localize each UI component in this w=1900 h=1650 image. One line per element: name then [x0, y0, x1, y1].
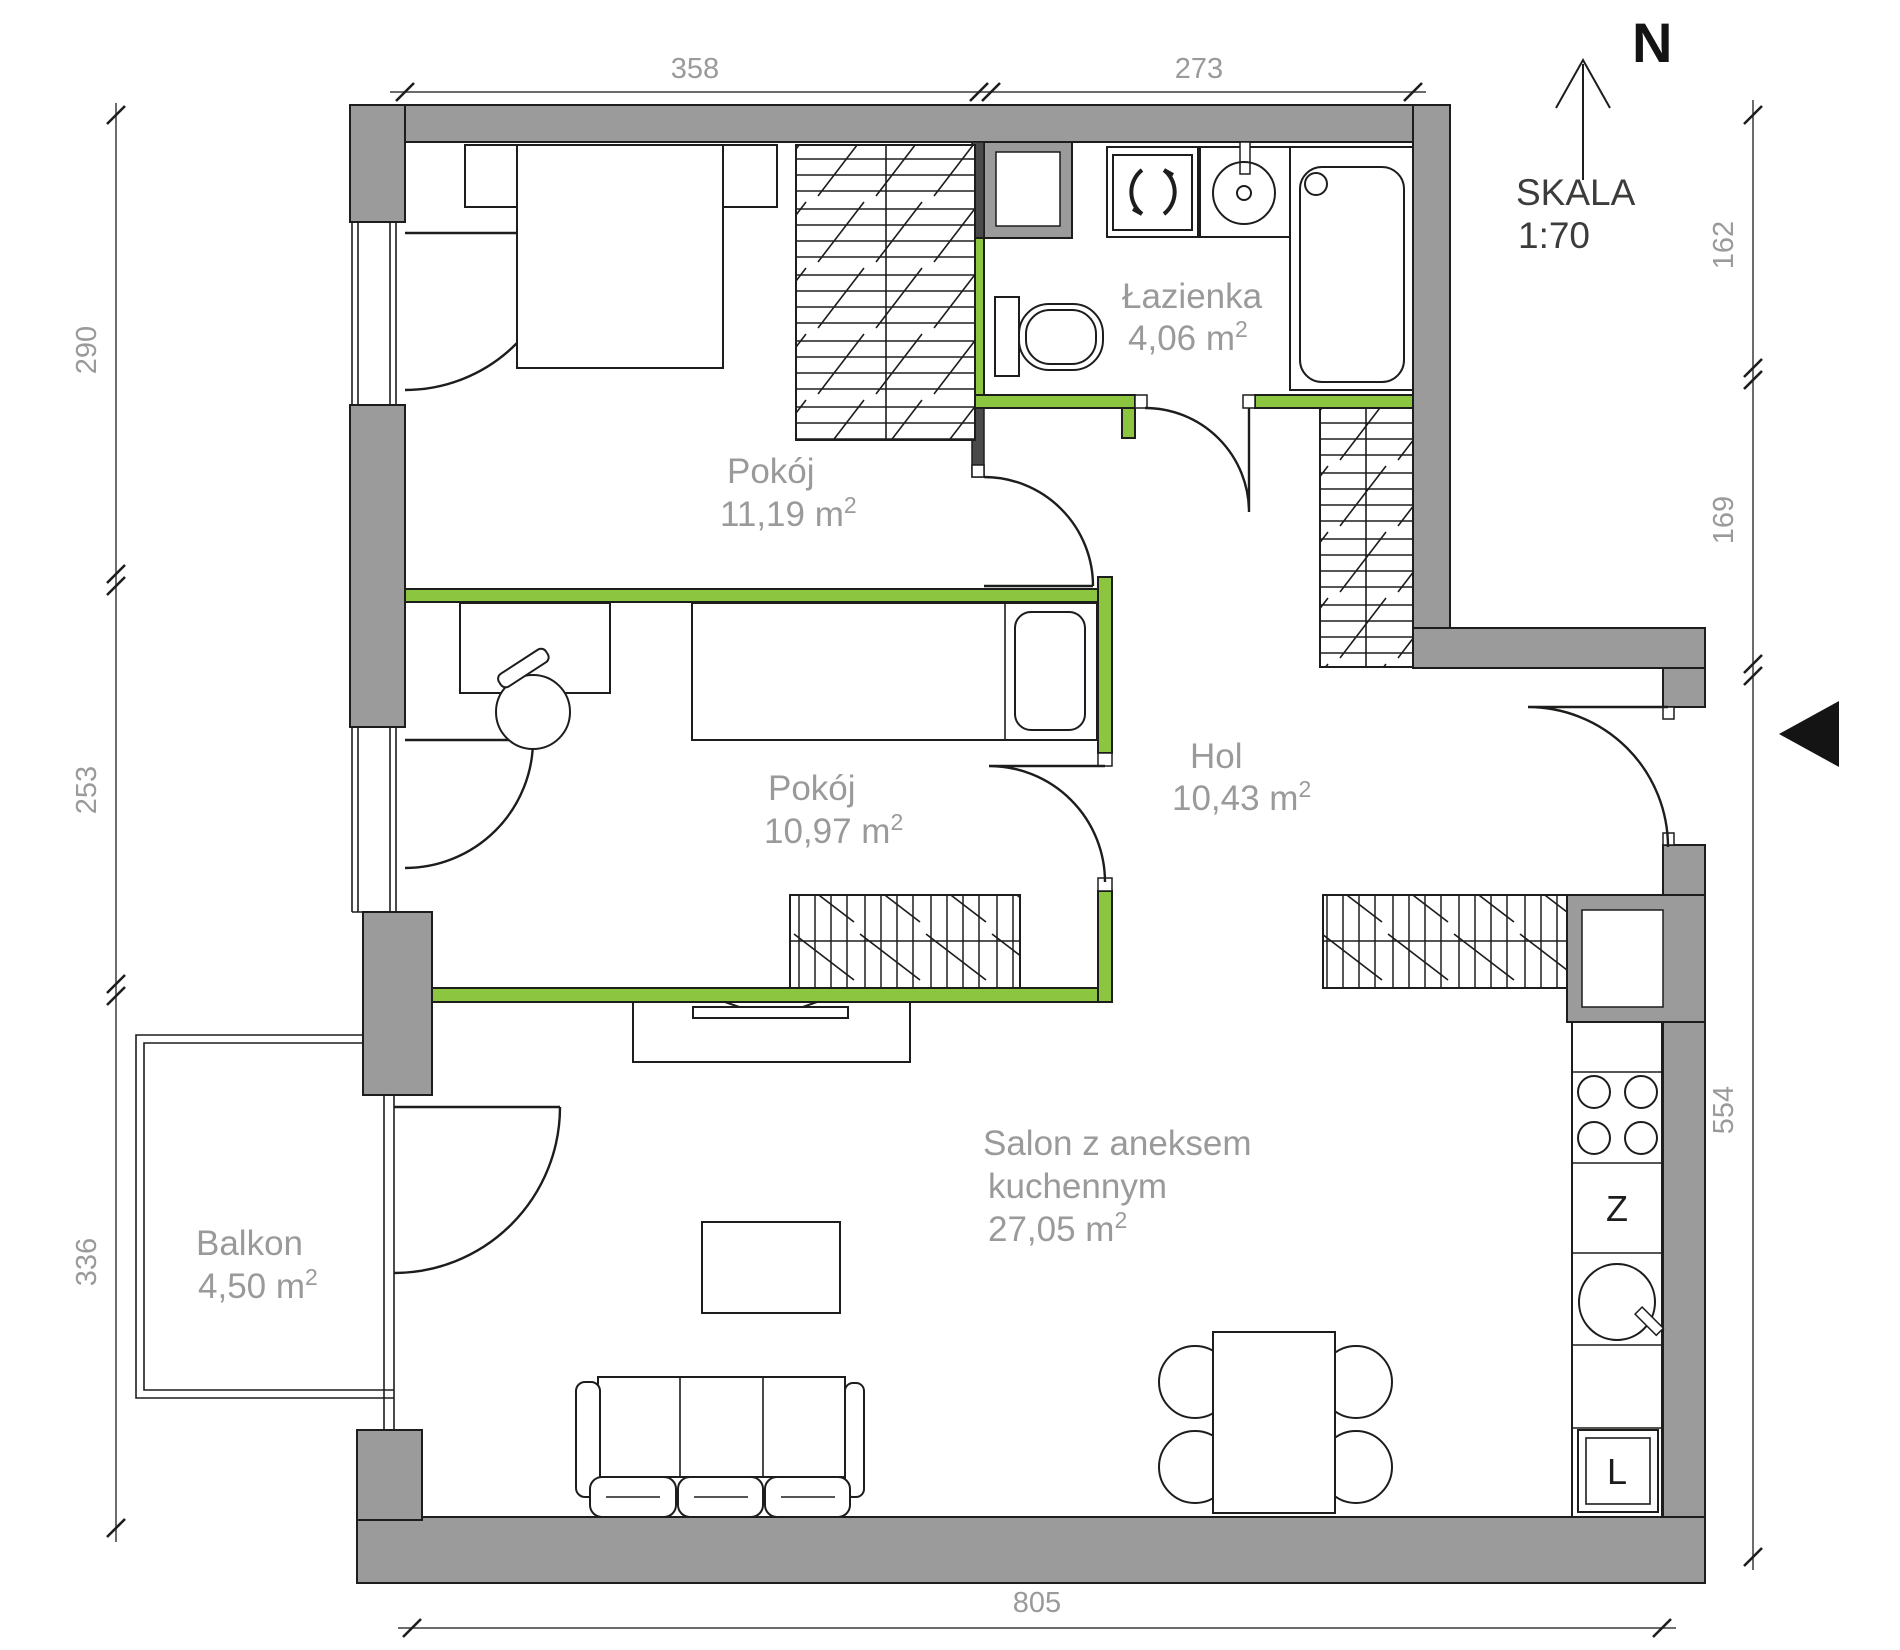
double-bed [517, 145, 723, 368]
dim-top-358: 358 [671, 53, 719, 85]
dim-right-554: 554 [1708, 1086, 1740, 1134]
pillow [1015, 612, 1085, 730]
entrance-door [1528, 707, 1668, 847]
room-label-balkon: Balkon [196, 1224, 303, 1263]
dim-left-290: 290 [71, 326, 103, 374]
dim-right-162: 162 [1708, 221, 1740, 269]
window-sash-room2 [405, 740, 533, 868]
kitchen-counter: Z L [1572, 1022, 1663, 1517]
balcony-outline [136, 1035, 394, 1398]
floor-plan-page: Z L Pokój 11,19 m2 Łazienka 4,06 m2 Pokó… [0, 0, 1900, 1650]
room-area-hol: 10,43 m2 [1172, 776, 1311, 818]
room-label-salon-2: kuchennym [988, 1167, 1167, 1206]
tv [693, 1007, 848, 1018]
sofa [576, 1377, 864, 1517]
doors [394, 233, 1668, 1273]
north-letter: N [1632, 11, 1672, 74]
compass: N [1556, 11, 1672, 180]
room-label-lazienka: Łazienka [1122, 277, 1263, 316]
furniture-bedroom [465, 145, 975, 440]
room2-door [989, 766, 1105, 882]
dining-set [1159, 1332, 1392, 1513]
coffee-table [702, 1222, 840, 1313]
entrance-marker-icon [1779, 701, 1839, 767]
scale-note: SKALA 1:70 [1516, 172, 1636, 256]
room-label-salon-1: Salon z aneksem [983, 1124, 1251, 1163]
bathroom-door [1145, 408, 1249, 512]
bedroom-door [984, 477, 1093, 586]
scale-label: SKALA [1516, 172, 1636, 213]
furniture-livingroom [576, 1002, 1392, 1517]
dishwasher-letter: Z [1606, 1188, 1628, 1229]
windows [352, 222, 396, 1430]
room-area-balkon: 4,50 m2 [198, 1264, 318, 1306]
dim-top-273: 273 [1175, 53, 1223, 85]
room-area-lazienka: 4,06 m2 [1128, 316, 1248, 358]
floor-plan-svg: Z L Pokój 11,19 m2 Łazienka 4,06 m2 Pokó… [0, 0, 1900, 1650]
dim-left-253: 253 [71, 766, 103, 814]
dim-left-336: 336 [71, 1238, 103, 1286]
fridge-letter: L [1607, 1451, 1627, 1492]
room-label-hol: Hol [1190, 737, 1243, 776]
scale-value: 1:70 [1518, 215, 1590, 256]
balcony-door [394, 1107, 560, 1273]
dining-table [1213, 1332, 1335, 1513]
room-area-salon: 27,05 m2 [988, 1207, 1127, 1249]
nightstand [723, 145, 777, 207]
room-label-pokoj-1: Pokój [727, 452, 815, 491]
nightstand [465, 145, 517, 207]
room-area-pokoj-1: 11,19 m2 [720, 492, 857, 534]
dim-right-169: 169 [1708, 496, 1740, 544]
room-label-pokoj-2: Pokój [768, 769, 856, 808]
room-area-pokoj-2: 10,97 m2 [764, 809, 903, 851]
dim-bottom-805: 805 [1013, 1587, 1061, 1619]
toilet [995, 297, 1019, 376]
